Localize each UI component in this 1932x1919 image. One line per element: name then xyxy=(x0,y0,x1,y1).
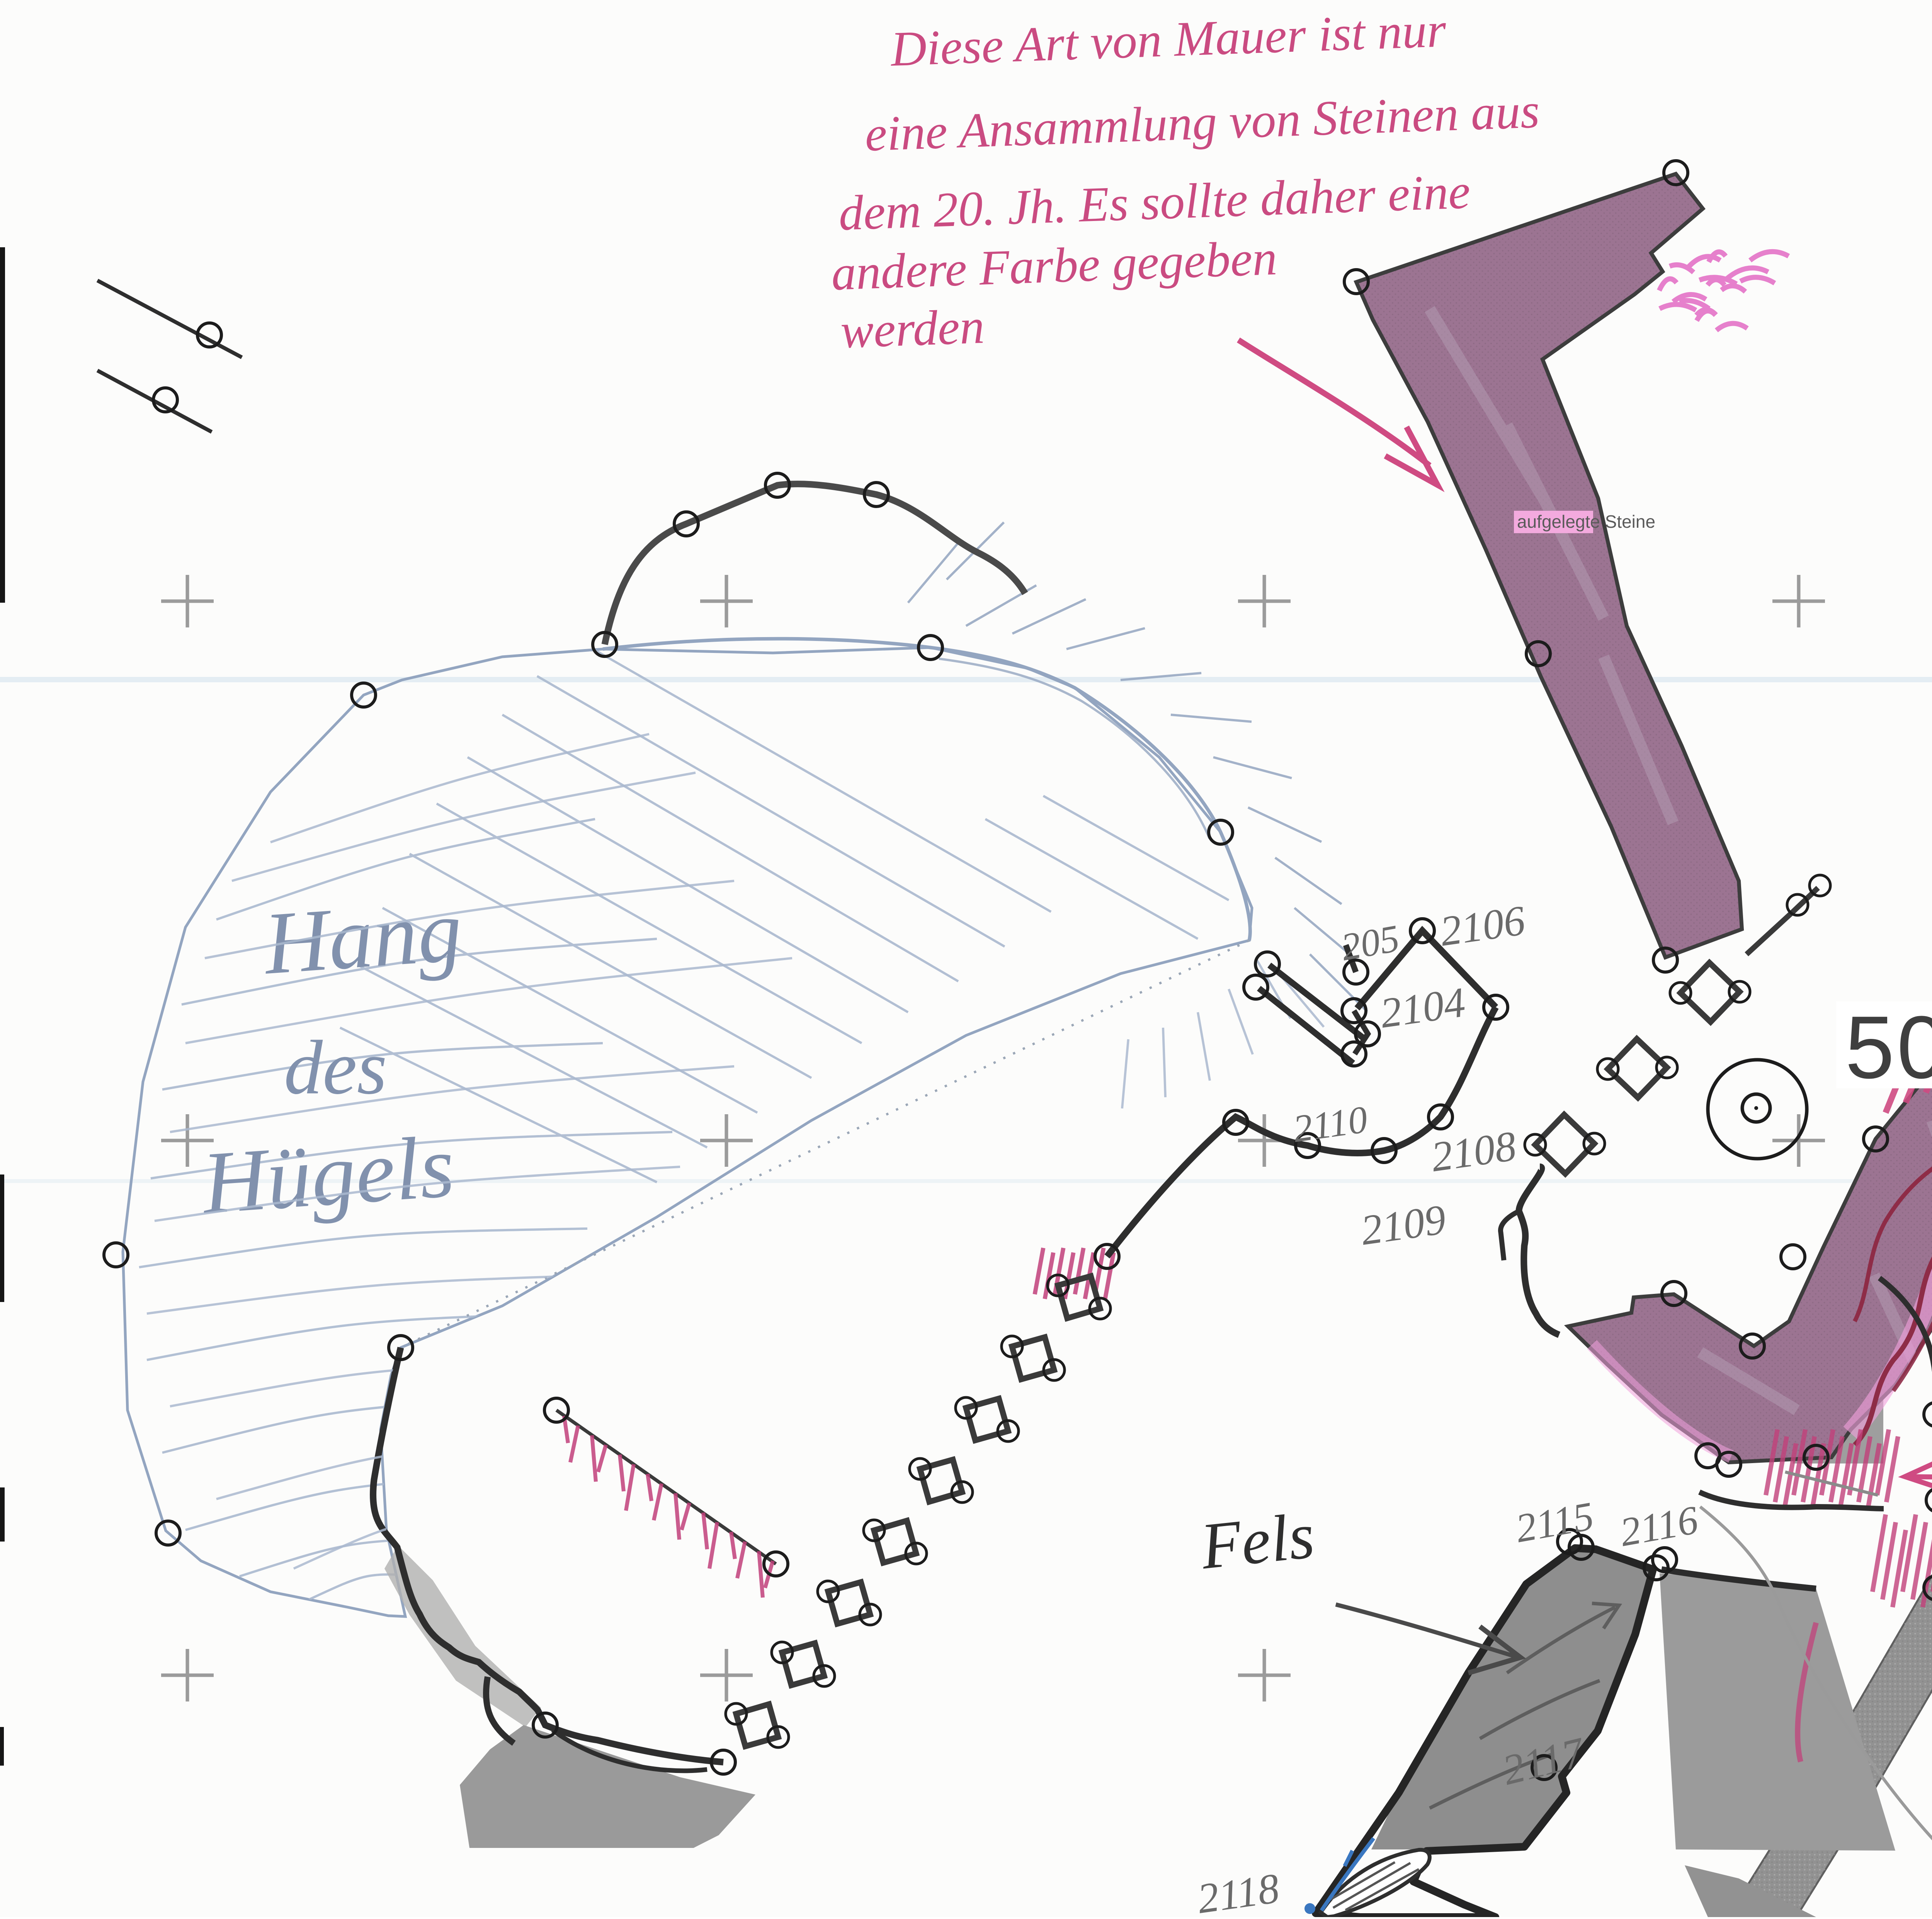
svg-text:Hang: Hang xyxy=(260,881,465,993)
svg-text:werden: werden xyxy=(840,299,985,359)
svg-text:Fels: Fels xyxy=(1197,1499,1318,1583)
svg-text:5002: 5002 xyxy=(1845,998,1932,1097)
svg-text:Hügels: Hügels xyxy=(198,1117,457,1232)
svg-text:des: des xyxy=(284,1025,387,1110)
svg-text:aufgelegte Steine: aufgelegte Steine xyxy=(1517,512,1655,532)
